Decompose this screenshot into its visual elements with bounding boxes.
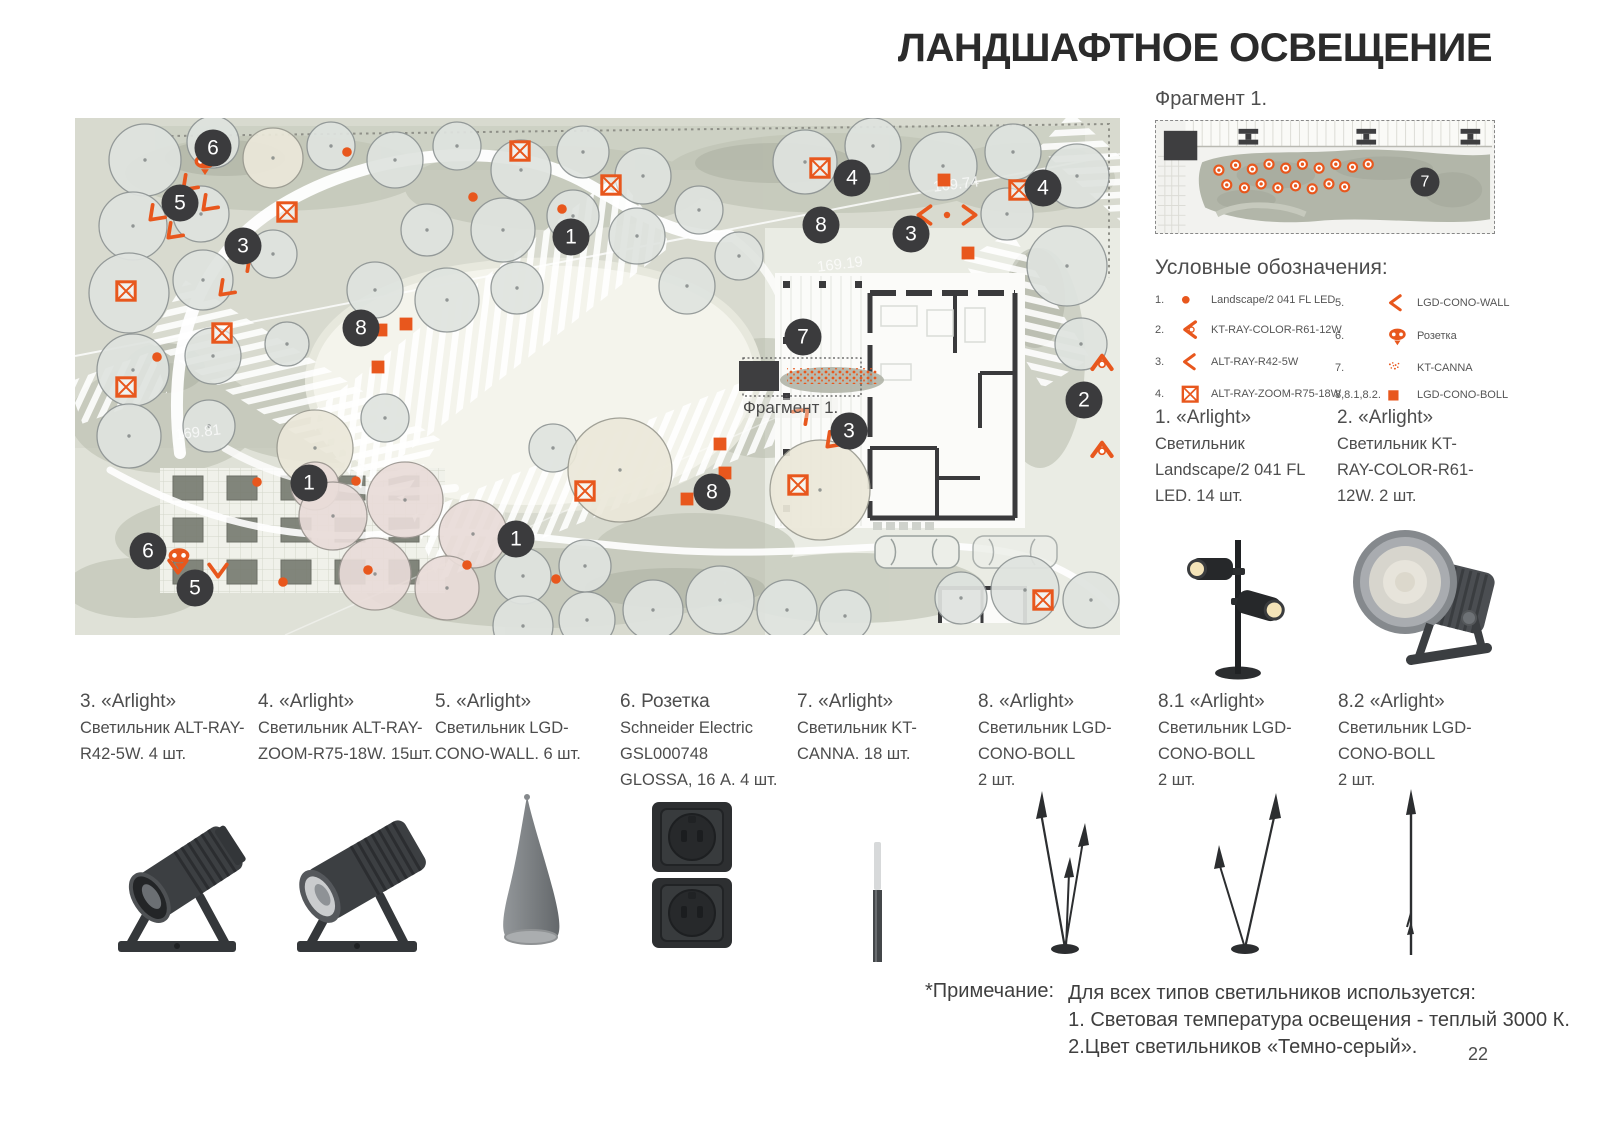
legend-item-num: 3.	[1155, 356, 1181, 368]
map-marker-arrow	[958, 204, 980, 226]
legend-item: 8,8.1,8.2. LGD-CONO-BOLL	[1335, 389, 1501, 402]
dot-icon	[1181, 295, 1211, 305]
page: ЛАНДШАФТНОЕ ОСВЕЩЕНИЕ	[0, 0, 1600, 1132]
map-marker-dot	[467, 191, 479, 203]
map-fragment-label: Фрагмент 1.	[743, 398, 838, 418]
product-line: CONO-BOLL	[978, 741, 1156, 767]
map-badge-5: 5	[177, 570, 214, 607]
product-title: 8. «Arlight»	[978, 688, 1156, 715]
legend-item: 2. KT-RAY-COLOR-R61-12W	[1155, 320, 1327, 339]
legend-column-2: 5. LGD-CONO-WALL 6. Розетка 7. KT-CANNA …	[1335, 294, 1501, 403]
product-1-photo	[1175, 532, 1305, 682]
product-4-photo	[255, 790, 440, 960]
speckles-icon	[1387, 360, 1417, 374]
map-marker-square	[370, 359, 386, 375]
map-badge-3: 3	[831, 413, 868, 450]
legend-item-num: 2.	[1155, 324, 1181, 336]
fragment-badge: 7	[1411, 168, 1440, 197]
rod-light-illustration	[862, 840, 892, 965]
product-line: Светильник	[1155, 431, 1333, 457]
legend-column-1: 1. Landscape/2 041 FL LED 2. KT-RAY-COLO…	[1155, 294, 1327, 403]
legend-item-label: KT-RAY-COLOR-R61-12W	[1211, 324, 1342, 336]
pole-spotlight-illustration	[1175, 532, 1305, 682]
legend-title: Условные обозначения:	[1155, 256, 1388, 280]
map-marker-xsquare	[1032, 589, 1055, 612]
product-title: 1. «Arlight»	[1155, 404, 1333, 431]
product-3-photo	[78, 795, 263, 960]
xsquare-icon	[1181, 385, 1211, 403]
note-label: *Примечание:	[925, 980, 1054, 1061]
legend-item: 5. LGD-CONO-WALL	[1335, 294, 1501, 312]
product-line: ZOOM-R75-18W. 15шт.	[258, 741, 436, 767]
legend-item: 3. ALT-RAY-R42-5W	[1155, 353, 1327, 371]
map-badge-1: 1	[291, 465, 328, 502]
product-desc-7: 7. «Arlight» Светильник KT- CANNA. 18 шт…	[797, 688, 975, 767]
product-line: Светильник LGD-	[435, 715, 613, 741]
map-marker-dot	[943, 211, 951, 219]
legend-item-label: ALT-RAY-ZOOM-R75-18W	[1211, 388, 1341, 400]
map-badge-1: 1	[553, 219, 590, 256]
fragment-artwork	[1156, 121, 1494, 233]
legend-item-label: LGD-CONO-WALL	[1417, 297, 1510, 309]
product-title: 5. «Arlight»	[435, 688, 613, 715]
fragment-image	[1155, 120, 1495, 234]
product-desc-5: 5. «Arlight» Светильник LGD- CONO-WALL. …	[435, 688, 613, 767]
map-marker-square	[960, 245, 976, 261]
product-line: GSL000748	[620, 741, 798, 767]
map-marker-dot	[350, 475, 362, 487]
map-marker-xsquare	[211, 322, 234, 345]
product-line: CONO-BOLL	[1338, 741, 1516, 767]
arrow-icon	[1387, 294, 1417, 312]
map-marker-dot	[277, 576, 289, 588]
product-line: Светильник ALT-RAY-	[80, 715, 258, 741]
product-2-photo	[1345, 522, 1495, 672]
legend-item: 6. Розетка	[1335, 326, 1501, 347]
map-badge-8: 8	[694, 474, 731, 511]
note-lines: Для всех типов светильников используется…	[1068, 980, 1570, 1061]
page-number: 22	[1468, 1044, 1488, 1065]
map-marker-dot	[251, 476, 263, 488]
product-8-photo	[1010, 785, 1120, 960]
note-line: 2.Цвет светильников «Темно-серый».	[1068, 1034, 1570, 1061]
product-title: 4. «Arlight»	[258, 688, 436, 715]
map-marker-dot	[362, 564, 374, 576]
product-line: LED. 14 шт.	[1155, 483, 1333, 509]
product-line: Светильник ALT-RAY-	[258, 715, 436, 741]
product-line: 12W. 2 шт.	[1337, 483, 1515, 509]
product-line: Светильник LGD-	[1338, 715, 1516, 741]
product-desc-4: 4. «Arlight» Светильник ALT-RAY- ZOOM-R7…	[258, 688, 436, 767]
map-marker-dot	[151, 351, 163, 363]
product-7-photo	[862, 840, 892, 965]
legend-item-label: LGD-CONO-BOLL	[1417, 389, 1508, 401]
map-badge-3: 3	[225, 228, 262, 265]
note-line: 1. Световая температура освещения - тепл…	[1068, 1007, 1570, 1034]
map-marker-socket	[166, 545, 192, 571]
socket-icon	[1387, 326, 1417, 347]
map-badge-4: 4	[1025, 170, 1062, 207]
map-marker-square	[398, 316, 414, 332]
product-desc-8: 8. «Arlight» Светильник LGD- CONO-BOLL 2…	[978, 688, 1156, 793]
product-desc-2: 2. «Arlight» Светильник KT- RAY-COLOR-R6…	[1337, 404, 1515, 509]
product-desc-8-1: 8.1 «Arlight» Светильник LGD- CONO-BOLL …	[1158, 688, 1336, 793]
map-badge-4: 4	[834, 160, 871, 197]
product-line: GLOSSA, 16 А. 4 шт.	[620, 767, 798, 793]
legend-item-label: KT-CANNA	[1417, 362, 1501, 374]
arrowdot-icon	[1181, 320, 1211, 339]
product-title: 3. «Arlight»	[80, 688, 258, 715]
product-line: Светильник LGD-	[978, 715, 1156, 741]
map-badge-1: 1	[498, 521, 535, 558]
spotlight-illustration	[78, 795, 263, 960]
product-desc-6: 6. Розетка Schneider Electric GSL000748 …	[620, 688, 798, 793]
product-line: Landscape/2 041 FL	[1155, 457, 1333, 483]
legend: 1. Landscape/2 041 FL LED 2. KT-RAY-COLO…	[1155, 294, 1501, 403]
spike-light-illustration	[1010, 785, 1120, 960]
map-marker-xsquare	[600, 174, 623, 197]
legend-item-label: ALT-RAY-R42-5W	[1211, 356, 1327, 368]
map-marker-arrowdot	[1090, 351, 1114, 375]
product-desc-8-2: 8.2 «Arlight» Светильник LGD- CONO-BOLL …	[1338, 688, 1516, 793]
product-title: 8.2 «Arlight»	[1338, 688, 1516, 715]
legend-item-num: 8,8.1,8.2.	[1335, 389, 1387, 401]
product-line: Светильник KT-	[797, 715, 975, 741]
product-line: Светильник LGD-	[1158, 715, 1336, 741]
legend-item: 1. Landscape/2 041 FL LED	[1155, 294, 1327, 306]
legend-item-num: 7.	[1335, 362, 1387, 374]
product-5-photo	[470, 790, 580, 955]
large-spotlight-illustration	[1345, 522, 1495, 672]
product-line: Светильник KT-	[1337, 431, 1515, 457]
map-badge-6: 6	[195, 130, 232, 167]
spike-light-illustration	[1190, 785, 1300, 960]
product-line: CONO-BOLL	[1158, 741, 1336, 767]
map-badge-3: 3	[893, 216, 930, 253]
map-badge-8: 8	[803, 207, 840, 244]
legend-item-label: Розетка	[1417, 330, 1501, 342]
map-badge-2: 2	[1066, 382, 1103, 419]
product-desc-1: 1. «Arlight» Светильник Landscape/2 041 …	[1155, 404, 1333, 509]
arrow-icon	[1181, 353, 1211, 371]
product-line: CONO-WALL. 6 шт.	[435, 741, 613, 767]
product-line: RAY-COLOR-R61-	[1337, 457, 1515, 483]
legend-item-num: 4.	[1155, 388, 1181, 400]
map-badge-8: 8	[343, 310, 380, 347]
map-badge-5: 5	[162, 185, 199, 222]
map-marker-dot	[556, 203, 568, 215]
map-marker-xsquare	[574, 480, 597, 503]
legend-item-label: Landscape/2 041 FL LED	[1211, 294, 1335, 306]
map-marker-xsquare	[276, 201, 299, 224]
map-marker-square	[712, 436, 728, 452]
map-marker-dot	[550, 573, 562, 585]
map-marker-xsquare	[509, 140, 532, 163]
product-title: 6. Розетка	[620, 688, 798, 715]
cone-light-illustration	[470, 790, 580, 955]
socket-illustration	[648, 800, 738, 950]
note-line: Для всех типов светильников используется…	[1068, 980, 1570, 1007]
product-title: 2. «Arlight»	[1337, 404, 1515, 431]
product-line: Schneider Electric	[620, 715, 798, 741]
legend-item-num: 1.	[1155, 294, 1181, 306]
legend-item: 4. ALT-RAY-ZOOM-R75-18W	[1155, 385, 1327, 403]
legend-item: 7. KT-CANNA	[1335, 360, 1501, 374]
map-marker-xsquare	[809, 157, 832, 180]
product-8-1-photo	[1190, 785, 1300, 960]
spotlight-illustration	[255, 790, 440, 960]
product-title: 8.1 «Arlight»	[1158, 688, 1336, 715]
fragment-title: Фрагмент 1.	[1155, 88, 1267, 111]
page-title: ЛАНДШАФТНОЕ ОСВЕЩЕНИЕ	[898, 26, 1492, 71]
map-marker-xsquare	[115, 376, 138, 399]
map-marker-dot	[341, 146, 353, 158]
map-badge-6: 6	[130, 533, 167, 570]
product-line: CANNA. 18 шт.	[797, 741, 975, 767]
square-icon	[1387, 389, 1417, 402]
product-title: 7. «Arlight»	[797, 688, 975, 715]
site-plan: Фрагмент 1. 169.19 169.81 169.74 6531848…	[75, 118, 1120, 635]
product-line: R42-5W. 4 шт.	[80, 741, 258, 767]
spike-light-illustration	[1390, 785, 1430, 960]
map-marker-dot	[461, 559, 473, 571]
product-8-2-photo	[1390, 785, 1430, 960]
site-plan-artwork	[75, 118, 1120, 635]
map-marker-xsquare	[787, 474, 810, 497]
product-desc-3: 3. «Arlight» Светильник ALT-RAY- R42-5W.…	[80, 688, 258, 767]
legend-item-num: 5.	[1335, 297, 1387, 309]
map-marker-arrowdot	[1090, 438, 1114, 462]
map-marker-xsquare	[115, 280, 138, 303]
legend-item-num: 6.	[1335, 330, 1387, 342]
product-6-photo	[648, 800, 738, 950]
map-marker-square	[936, 172, 952, 188]
map-badge-7: 7	[785, 319, 822, 356]
